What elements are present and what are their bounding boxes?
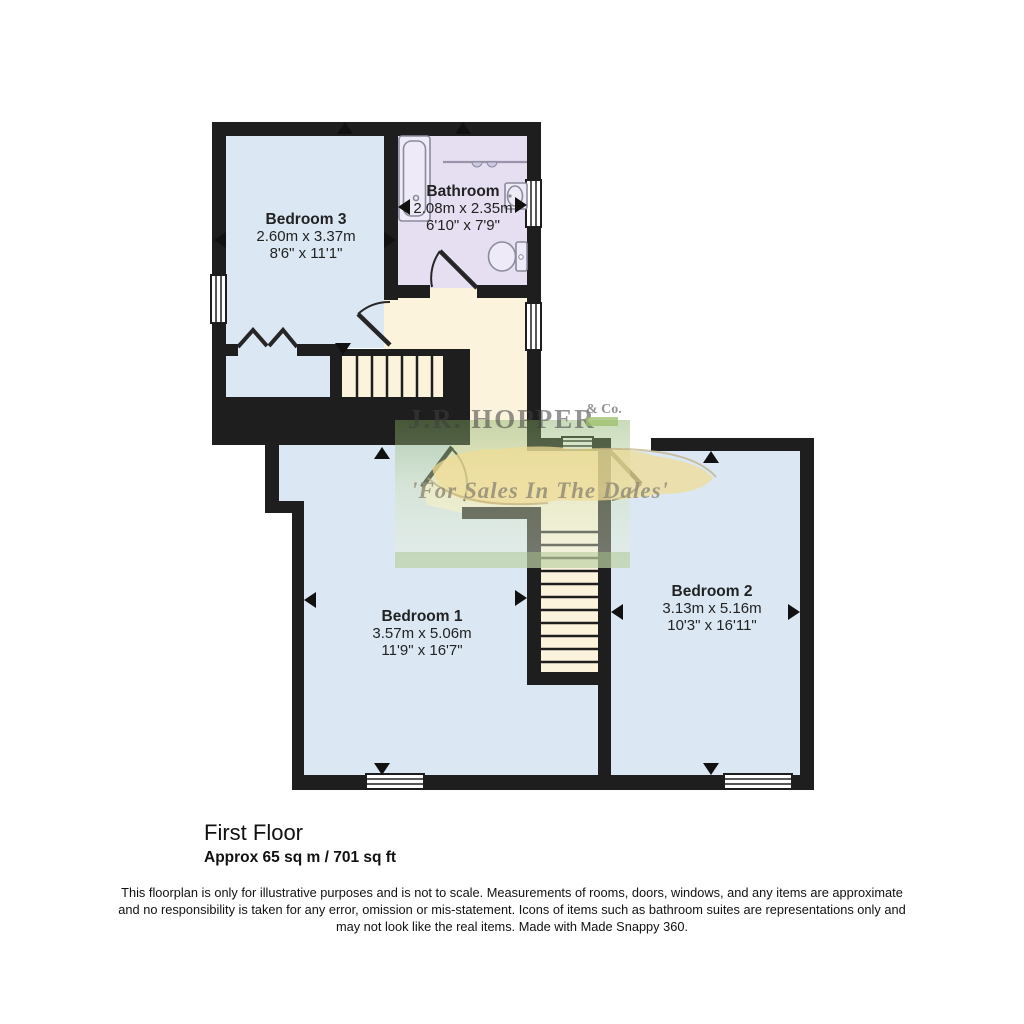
logo-tagline: 'For Sales In The Dales' xyxy=(411,478,669,503)
room-dim-imperial: 11'9" x 16'7" xyxy=(381,642,462,659)
room-dim-metric: 3.57m x 5.06m xyxy=(372,625,471,642)
floor-title: First Floor xyxy=(204,820,303,845)
room-dim-imperial: 10'3" x 16'11" xyxy=(667,617,757,634)
room-label-bedroom2: Bedroom 2 3.13m x 5.16m 10'3" x 16'11" xyxy=(662,583,761,634)
disclaimer-line: This floorplan is only for illustrative … xyxy=(121,885,903,900)
room-name: Bedroom 2 xyxy=(672,583,753,600)
watermark-landscape-band xyxy=(395,552,630,568)
room-dim-imperial: 6'10" x 7'9" xyxy=(426,217,500,234)
room-name: Bedroom 1 xyxy=(382,608,463,625)
window-bedroom2-bottom xyxy=(724,774,792,789)
window-bathroom-right xyxy=(526,180,541,227)
floorplan-page: J.R. HOPPER & Co. 'For Sales In The Dale… xyxy=(0,0,1024,1024)
floorplan-canvas: J.R. HOPPER & Co. 'For Sales In The Dale… xyxy=(0,0,1024,1024)
room-label-bathroom: Bathroom 2.08m x 2.35m 6'10" x 7'9" xyxy=(413,183,512,234)
toilet-icon xyxy=(489,242,528,271)
room-dim-metric: 3.13m x 5.16m xyxy=(662,600,761,617)
room-name: Bathroom xyxy=(426,183,499,200)
room-dim-imperial: 8'6" x 11'1" xyxy=(270,245,343,262)
logo-brand: J.R. HOPPER xyxy=(408,404,596,434)
room-label-bedroom3: Bedroom 3 2.60m x 3.37m 8'6" x 11'1" xyxy=(256,211,355,262)
floor-area: Approx 65 sq m / 701 sq ft xyxy=(204,849,396,866)
room-label-bedroom1: Bedroom 1 3.57m x 5.06m 11'9" x 16'7" xyxy=(372,608,471,659)
disclaimer-line: and no responsibility is taken for any e… xyxy=(118,902,905,917)
window-bedroom1-bottom xyxy=(366,774,424,789)
logo-badge xyxy=(586,417,618,426)
disclaimer-line: may not look like the real items. Made w… xyxy=(336,919,688,934)
room-name: Bedroom 3 xyxy=(266,211,347,228)
window-bedroom3-left xyxy=(211,275,226,323)
room-dim-metric: 2.60m x 3.37m xyxy=(256,228,355,245)
room-dim-metric: 2.08m x 2.35m xyxy=(413,200,512,217)
logo-brand-suffix: & Co. xyxy=(586,402,622,417)
footer: First Floor Approx 65 sq m / 701 sq ft T… xyxy=(118,820,905,934)
window-landing-right xyxy=(526,303,541,350)
